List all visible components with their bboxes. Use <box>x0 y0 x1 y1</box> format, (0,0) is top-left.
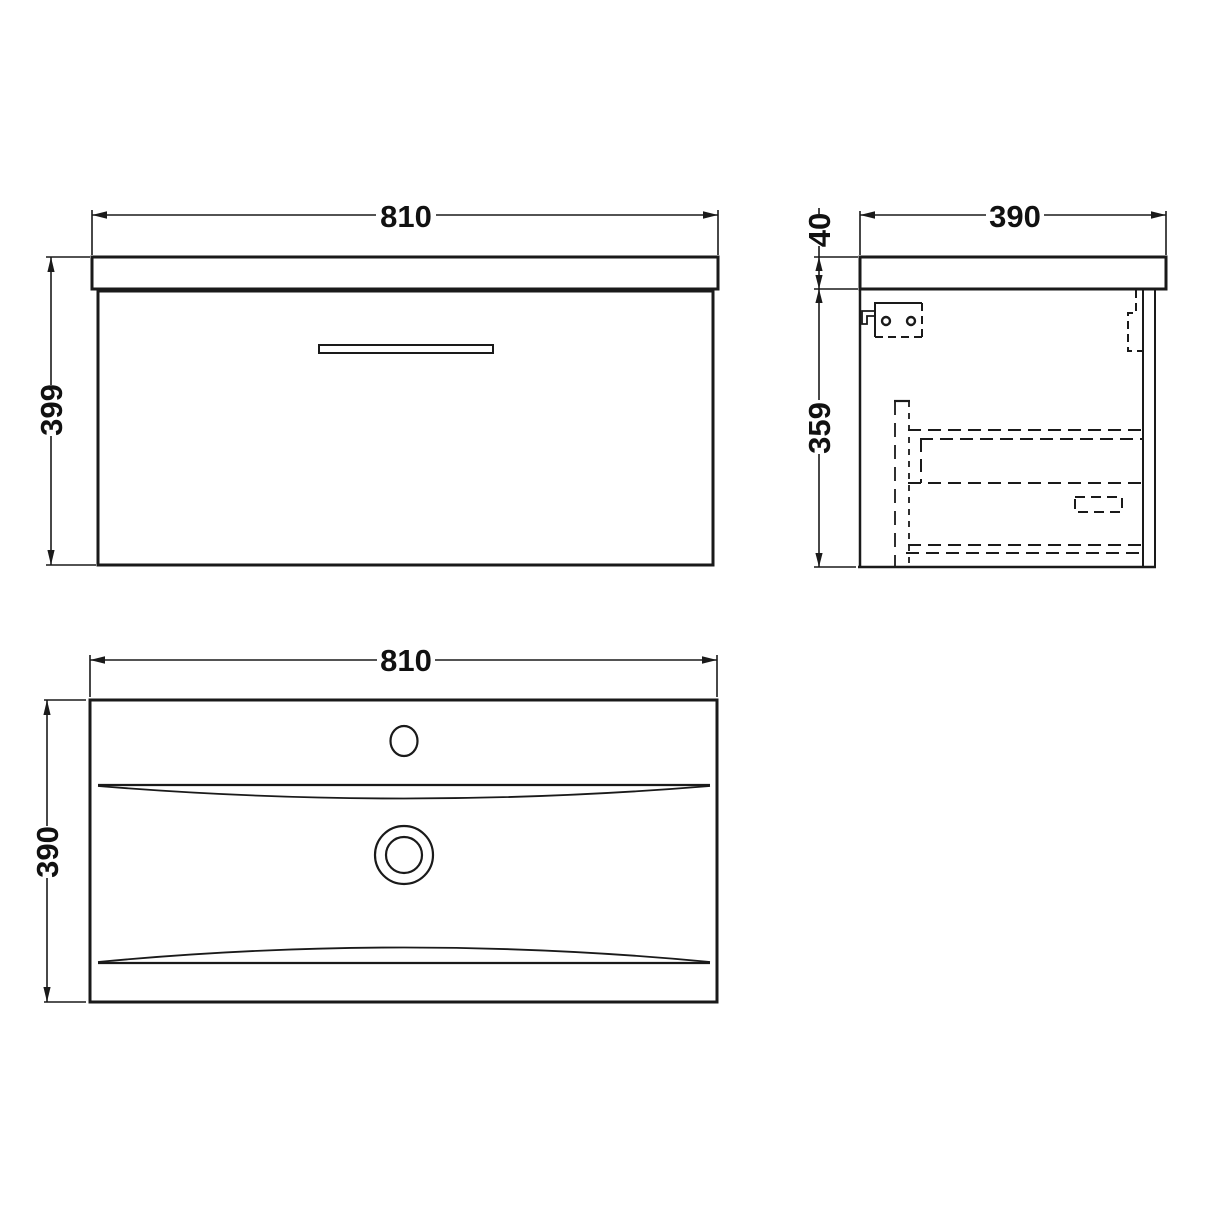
cabinet-height-label: 359 <box>802 402 837 454</box>
cabinet-front <box>98 291 713 565</box>
side-depth-label: 390 <box>989 199 1041 234</box>
drawer-handle <box>319 345 493 353</box>
front-height-dimension: 399 <box>34 257 96 565</box>
plan-width-dimension: 810 <box>90 643 717 697</box>
arrow-bottom <box>47 550 54 565</box>
drawer-catch-recess <box>1075 497 1122 512</box>
arrow-top <box>43 700 50 715</box>
arrow-top <box>47 257 54 272</box>
technical-drawing-canvas: 810 399 <box>0 0 1214 1214</box>
bracket-screw-hole-left <box>882 317 890 325</box>
arrow-right <box>702 656 717 664</box>
plan-view: 810 390 <box>30 643 717 1002</box>
drawer-front-bracket <box>1128 290 1143 351</box>
drawing-svg: 810 399 <box>0 0 1214 1214</box>
arrow-top <box>815 289 822 303</box>
side-view: 390 40 359 <box>802 199 1166 567</box>
arrow-bottom <box>43 987 50 1002</box>
front-width-label: 810 <box>380 199 432 234</box>
worktop-thickness-dimension: 40 <box>802 208 858 289</box>
arrow-bottom <box>815 275 822 289</box>
drawer-runner <box>894 401 910 566</box>
side-depth-dimension: 390 <box>860 199 1166 255</box>
worktop-thickness-label: 40 <box>802 213 837 247</box>
worktop-front <box>92 257 718 289</box>
plan-depth-dimension: 390 <box>30 700 86 1002</box>
bracket-wall-hook <box>862 311 875 324</box>
arrow-left <box>860 211 875 219</box>
arrow-left <box>92 211 107 219</box>
plan-width-label: 810 <box>380 643 432 678</box>
plan-depth-label: 390 <box>30 826 65 878</box>
drawer-hidden-outline <box>906 430 1143 553</box>
arrow-bottom <box>815 553 822 567</box>
arrow-top <box>815 257 822 271</box>
front-height-label: 399 <box>34 384 69 436</box>
arrow-right <box>1151 211 1166 219</box>
worktop-side <box>860 257 1166 289</box>
arrow-left <box>90 656 105 664</box>
wall-mounting-bracket <box>862 303 922 337</box>
basin-outline <box>90 700 717 1002</box>
bracket-screw-hole-right <box>907 317 915 325</box>
arrow-right <box>703 211 718 219</box>
front-width-dimension: 810 <box>92 199 718 255</box>
front-view: 810 399 <box>34 199 718 565</box>
cabinet-height-dimension: 359 <box>802 289 856 567</box>
